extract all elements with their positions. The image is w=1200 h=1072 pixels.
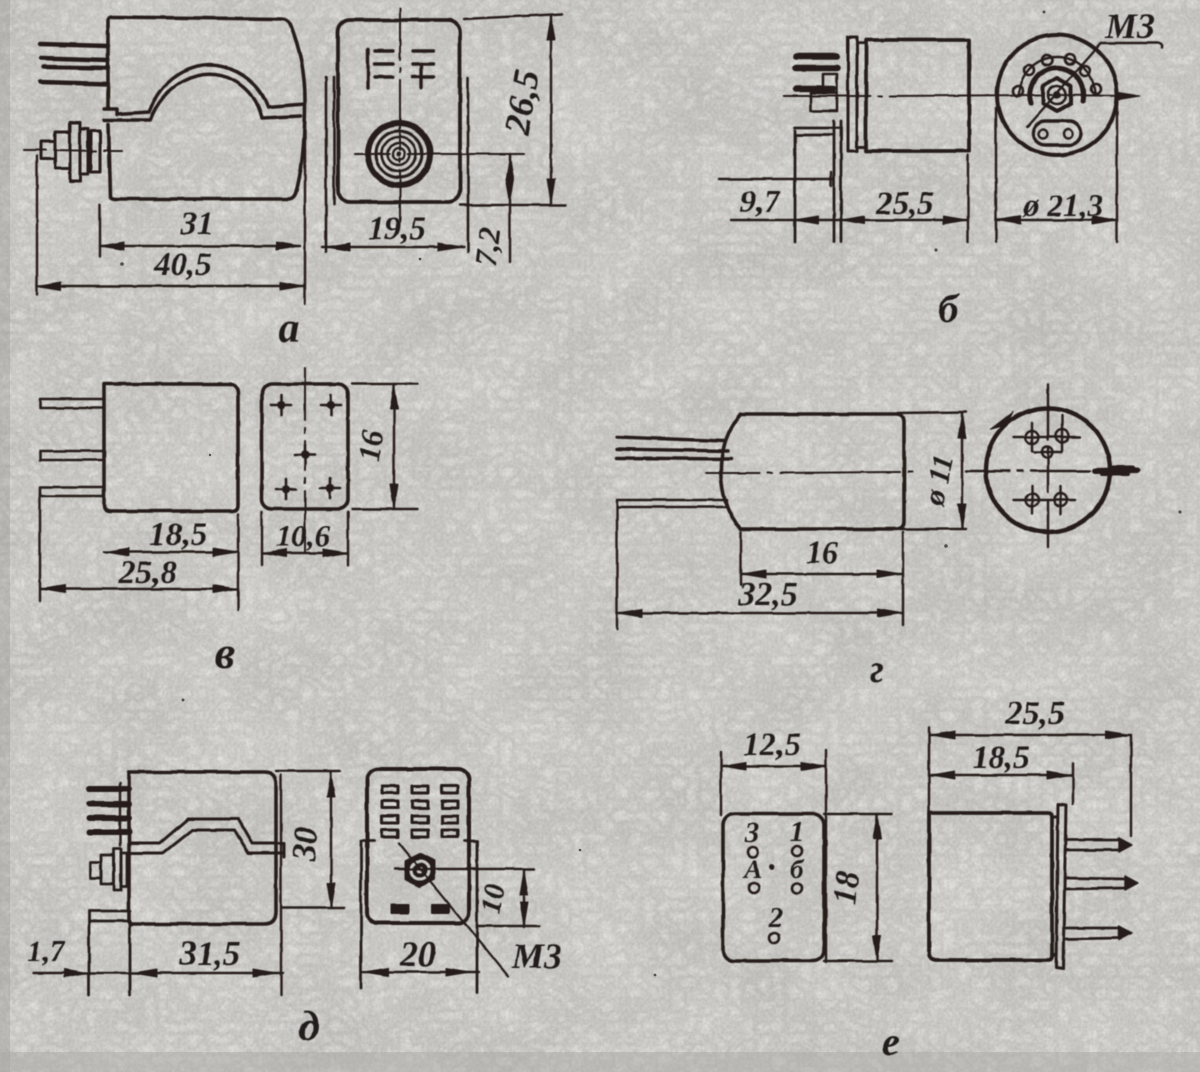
- svg-text:г: г: [870, 646, 885, 691]
- svg-text:М3: М3: [1104, 6, 1155, 46]
- svg-text:32,5: 32,5: [737, 576, 798, 613]
- svg-text:1,7: 1,7: [27, 935, 66, 968]
- svg-text:М3: М3: [511, 936, 562, 976]
- svg-text:е: е: [882, 1019, 900, 1064]
- svg-text:а: а: [279, 306, 300, 352]
- svg-text:в: в: [215, 627, 236, 678]
- svg-text:25,5: 25,5: [1004, 695, 1065, 732]
- svg-text:31,5: 31,5: [178, 934, 240, 973]
- svg-text:2: 2: [768, 902, 784, 934]
- svg-text:д: д: [299, 1004, 320, 1050]
- svg-text:18,5: 18,5: [149, 517, 207, 553]
- svg-text:ø 21,3: ø 21,3: [1022, 187, 1103, 223]
- svg-text:20: 20: [399, 934, 436, 974]
- svg-text:7,2: 7,2: [468, 225, 507, 268]
- svg-text:16: 16: [351, 428, 390, 464]
- svg-text:б: б: [791, 855, 805, 884]
- svg-text:б: б: [938, 286, 960, 331]
- svg-text:10: 10: [475, 881, 512, 915]
- svg-text:16: 16: [806, 534, 838, 570]
- svg-text:12,5: 12,5: [743, 727, 801, 763]
- svg-text:25,5: 25,5: [875, 186, 934, 222]
- svg-text:25,8: 25,8: [118, 555, 177, 591]
- svg-text:19,5: 19,5: [368, 211, 426, 247]
- svg-text:40,5: 40,5: [153, 247, 212, 283]
- svg-text:9,7: 9,7: [740, 183, 782, 219]
- svg-text:1: 1: [790, 816, 805, 848]
- svg-text:31: 31: [180, 206, 214, 242]
- svg-text:А: А: [742, 855, 761, 884]
- svg-text:3: 3: [744, 817, 760, 849]
- svg-text:10,6: 10,6: [276, 518, 331, 553]
- svg-text:18,5: 18,5: [972, 740, 1030, 776]
- svg-text:18: 18: [827, 869, 867, 906]
- svg-text:30: 30: [286, 826, 326, 864]
